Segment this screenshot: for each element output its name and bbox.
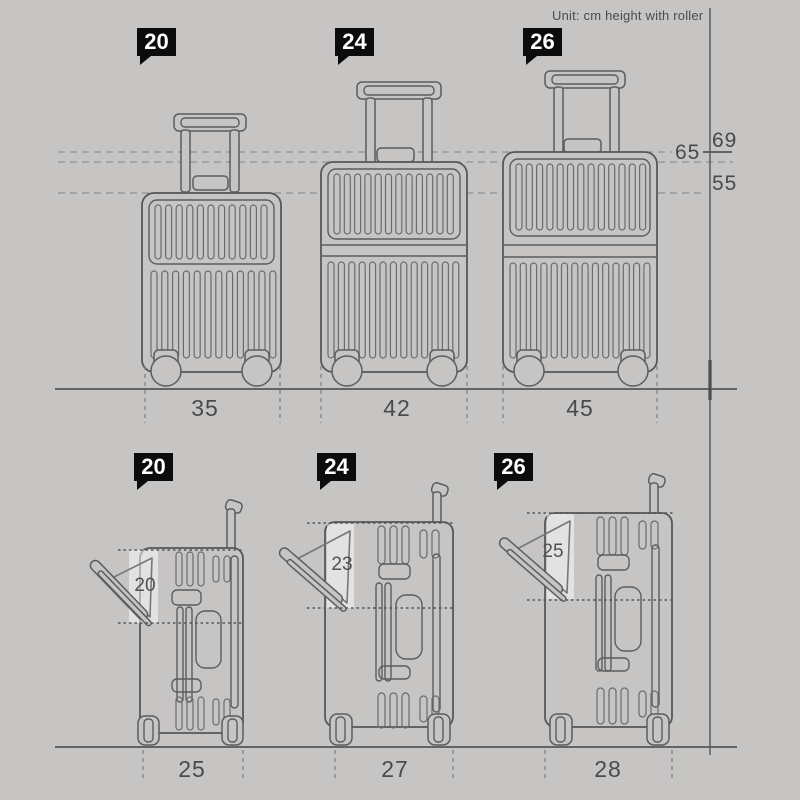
unit-note: Unit: cm height with roller (552, 9, 703, 22)
trolley-bar (357, 82, 441, 99)
front-view-luggage-20 (142, 114, 281, 386)
height-label-26: 69 (712, 130, 737, 151)
width-label-26: 45 (558, 397, 602, 420)
wheel (330, 714, 352, 745)
wheel (647, 714, 669, 745)
depth-label-24: 27 (373, 758, 417, 781)
wheel (138, 716, 159, 745)
luggage-size-diagram: Unit: cm height with roller 20 24 26 69 … (0, 0, 800, 800)
side-view-luggage-26 (498, 473, 674, 745)
wheel (242, 356, 272, 386)
front-size-tag-24-label: 24 (342, 29, 366, 55)
wheel (222, 716, 243, 745)
opening-label-24: 23 (327, 555, 357, 574)
trolley-bar (174, 114, 246, 131)
depth-label-26: 28 (586, 758, 630, 781)
side-size-tag-20-label: 20 (141, 454, 165, 480)
side-view-luggage-20 (88, 499, 243, 745)
wheel (427, 356, 457, 386)
side-size-tag-20: 20 (134, 453, 173, 481)
height-label-20: 55 (712, 173, 737, 194)
wheel (151, 356, 181, 386)
front-size-tag-26-label: 26 (530, 29, 554, 55)
wheel (550, 714, 572, 745)
side-view-luggage-24 (278, 482, 455, 745)
trolley-bar (545, 71, 625, 88)
front-size-tag-26: 26 (523, 28, 562, 56)
width-label-24: 42 (375, 397, 419, 420)
front-size-tag-20: 20 (137, 28, 176, 56)
side-size-tag-26: 26 (494, 453, 533, 481)
wheel (332, 356, 362, 386)
side-size-tag-24: 24 (317, 453, 356, 481)
front-size-tag-20-label: 20 (144, 29, 168, 55)
width-label-20: 35 (183, 397, 227, 420)
side-size-tag-24-label: 24 (324, 454, 348, 480)
front-view-luggage-26 (503, 71, 657, 386)
opening-label-26: 25 (538, 542, 568, 561)
height-label-24: 65 (675, 142, 700, 163)
opening-label-20: 20 (130, 576, 160, 595)
side-size-tag-26-label: 26 (501, 454, 525, 480)
wheel (428, 714, 450, 745)
luggage-body (321, 162, 467, 372)
front-size-tag-24: 24 (335, 28, 374, 56)
depth-label-20: 25 (170, 758, 214, 781)
front-view-luggage-24 (321, 82, 467, 386)
wheel (514, 356, 544, 386)
wheel (618, 356, 648, 386)
